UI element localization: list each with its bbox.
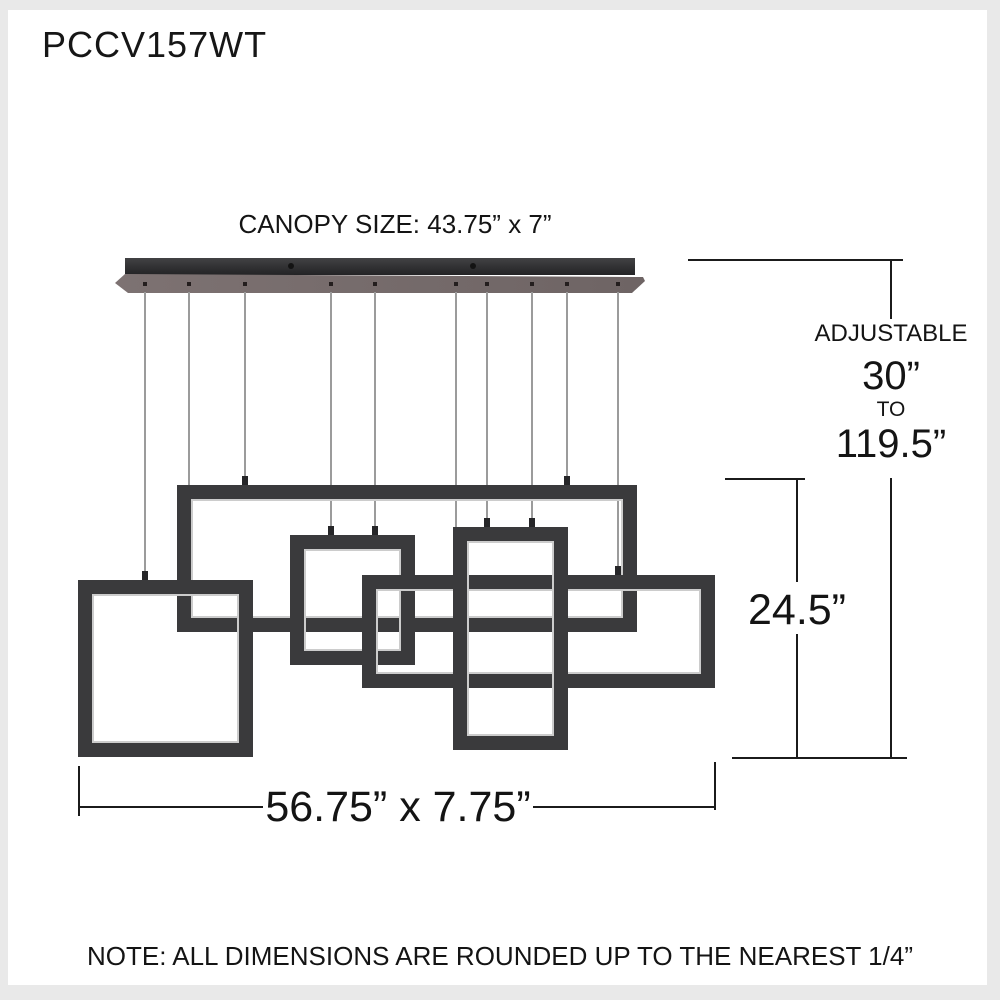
light-frame-left-square — [78, 580, 253, 757]
canopy-screw-icon — [187, 282, 191, 286]
canopy-screw-icon — [470, 263, 476, 269]
overall-size-value: 56.75” x 7.75” — [198, 783, 598, 832]
dimension-tick-width-left — [78, 766, 80, 816]
canopy-screw-icon — [143, 282, 147, 286]
dimension-tick-frame-top — [725, 478, 805, 480]
canopy-screw-icon — [329, 282, 333, 286]
canopy-screw-icon — [616, 282, 620, 286]
cable-connector — [142, 571, 148, 580]
canopy-screw-icon — [565, 282, 569, 286]
suspension-cable — [566, 292, 568, 477]
canopy-screw-icon — [373, 282, 377, 286]
adjustable-min-value: 30” — [781, 354, 1000, 398]
canopy-screw-icon — [243, 282, 247, 286]
cable-connector — [242, 476, 248, 485]
adjustable-word: ADJUSTABLE — [781, 320, 1000, 347]
dimension-line-frame-height-upper — [796, 479, 798, 582]
dimension-tick-width-right — [714, 762, 716, 810]
dimension-line-frame-height-lower — [796, 634, 798, 759]
suspension-cable — [144, 292, 146, 572]
canopy-screw-icon — [485, 282, 489, 286]
adjustable-to-word: TO — [781, 398, 1000, 422]
frame-height-value: 24.5” — [697, 586, 897, 635]
adjustable-height-label: ADJUSTABLE 30” TO 119.5” — [781, 320, 1000, 466]
dimension-line-adjustable-upper — [890, 260, 892, 319]
canopy-screw-icon — [454, 282, 458, 286]
adjustable-max-value: 119.5” — [781, 422, 1000, 466]
dimensions-note: NOTE: ALL DIMENSIONS ARE ROUNDED UP TO T… — [0, 941, 1000, 972]
light-frame-tall-right — [453, 527, 568, 750]
dimension-tick-frame-bottom — [732, 757, 907, 759]
cable-connector — [564, 476, 570, 485]
canopy-bar — [125, 258, 635, 275]
canopy-screw-icon — [288, 263, 294, 269]
product-dimension-diagram: PCCV157WT CANOPY SIZE: 43.75” x 7” ADJUS… — [0, 0, 1000, 1000]
canopy-size-label: CANOPY SIZE: 43.75” x 7” — [145, 209, 645, 240]
suspension-cable — [244, 292, 246, 477]
canopy-screw-icon — [530, 282, 534, 286]
dimension-line-canopy-level — [688, 259, 903, 261]
model-number: PCCV157WT — [42, 24, 267, 66]
